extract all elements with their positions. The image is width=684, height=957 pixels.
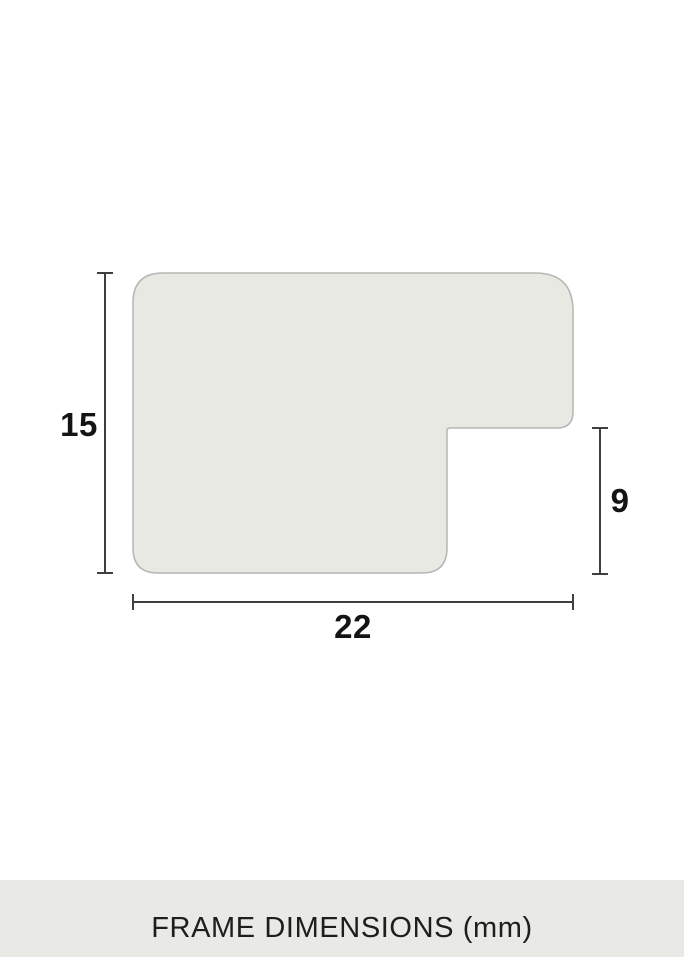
rabbet-dimension-line: [592, 428, 608, 574]
frame-profile-diagram: 15 22 9: [0, 0, 684, 880]
caption-title: FRAME DIMENSIONS (mm): [151, 913, 533, 943]
frame-dimensions-page: 15 22 9 FRAME DIMENSIONS (mm): [0, 0, 684, 957]
height-dimension-label: 15: [60, 406, 98, 444]
caption-band: FRAME DIMENSIONS (mm): [0, 880, 684, 957]
frame-profile-shape: [133, 273, 573, 573]
frame-profile-svg: [0, 0, 684, 880]
height-dimension-line: [97, 273, 113, 573]
rabbet-dimension-label: 9: [611, 482, 630, 520]
width-dimension-label: 22: [334, 608, 372, 646]
